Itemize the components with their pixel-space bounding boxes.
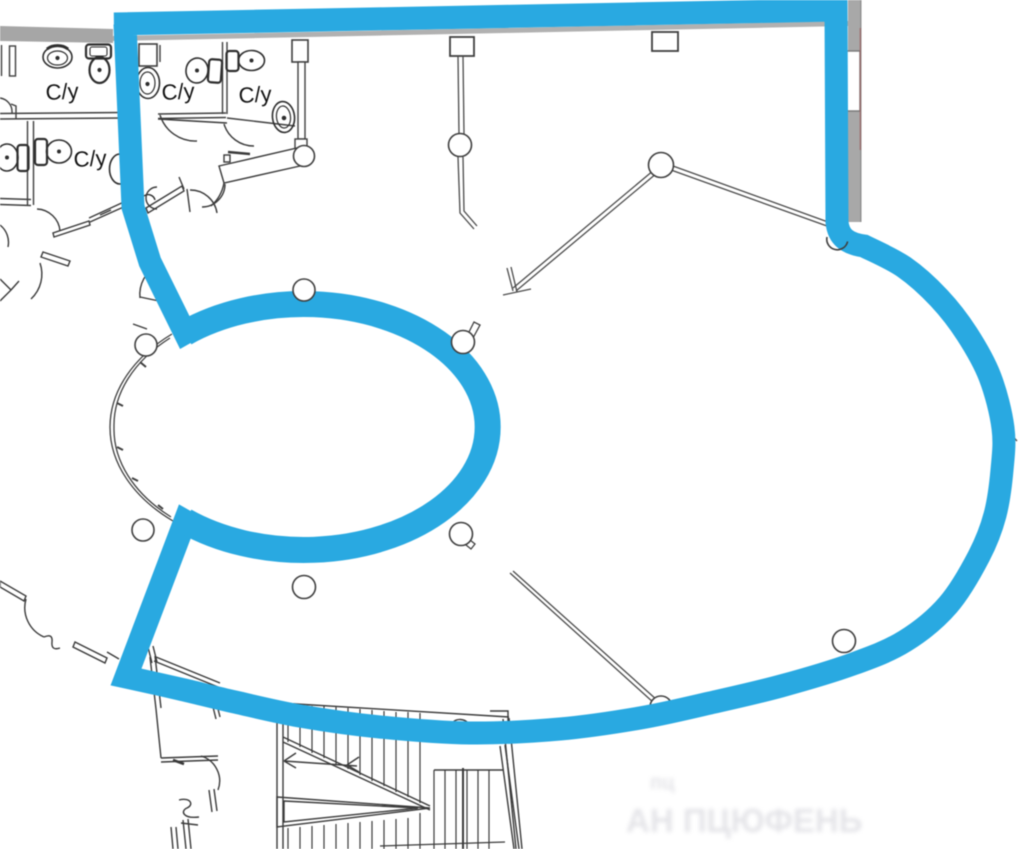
svg-text:С/у: С/у: [238, 81, 272, 108]
svg-text:С/у: С/у: [73, 145, 107, 172]
svg-text:АН ПЦЮФЕНЬ: АН ПЦЮФЕНЬ: [626, 802, 862, 839]
svg-text:С/у: С/у: [161, 78, 195, 105]
svg-text:пц: пц: [650, 772, 675, 794]
svg-text:С/у: С/у: [45, 78, 79, 105]
